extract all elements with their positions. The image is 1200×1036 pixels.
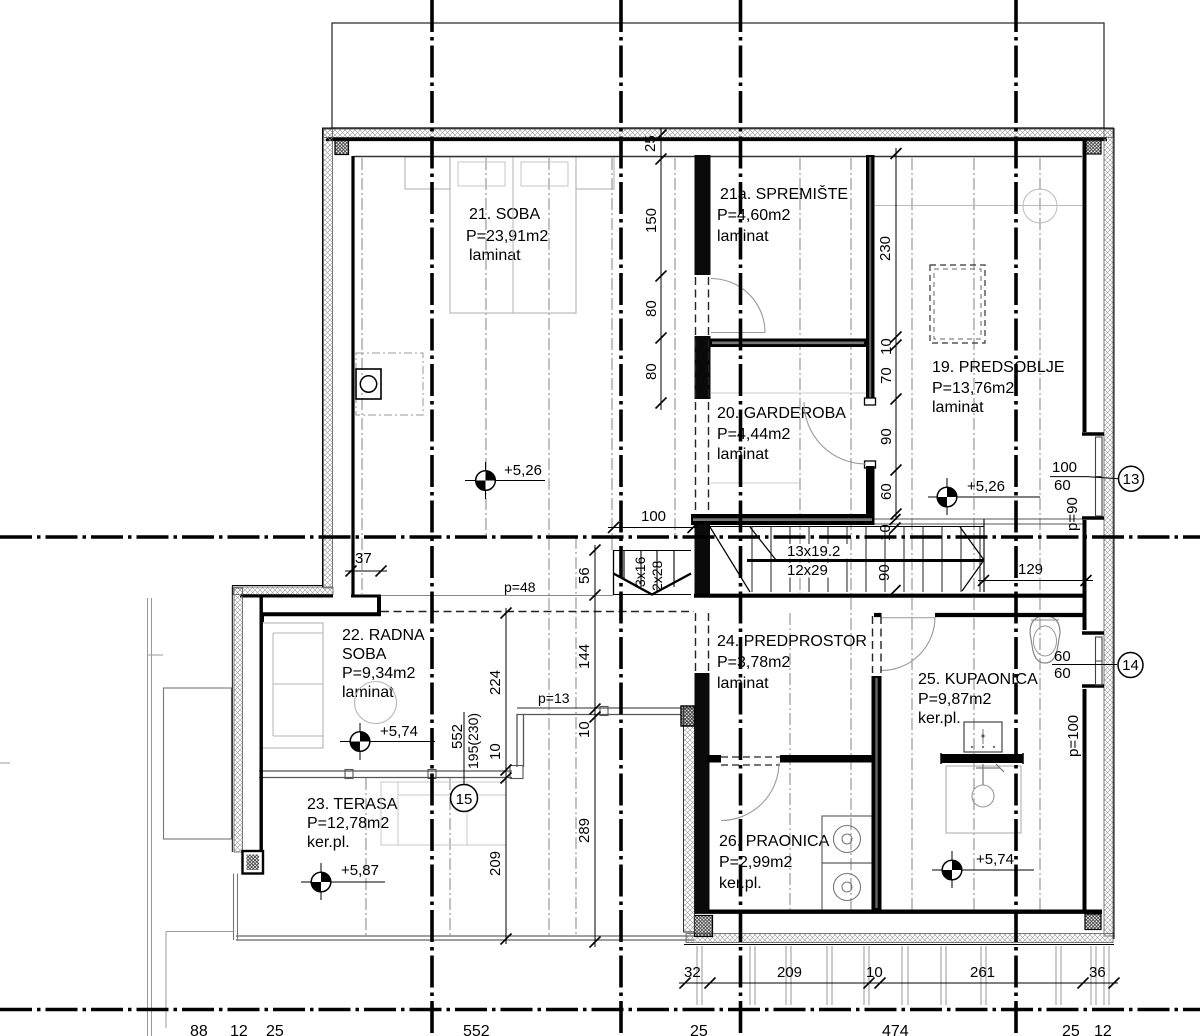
svg-text:60: 60 [1054,648,1071,665]
svg-text:P=4,60m2: P=4,60m2 [717,207,790,224]
svg-text:80: 80 [643,363,660,380]
svg-text:laminat: laminat [342,684,394,701]
svg-text:+5,74: +5,74 [380,723,418,740]
svg-text:19. PREDSOBLJE: 19. PREDSOBLJE [932,359,1065,376]
svg-text:209: 209 [487,851,504,876]
svg-text:10: 10 [576,721,593,738]
svg-text:552: 552 [449,724,466,749]
svg-text:p=48: p=48 [504,579,536,595]
svg-text:60: 60 [878,483,895,500]
svg-text:ker.pl.: ker.pl. [307,834,350,851]
svg-text:80: 80 [643,300,660,317]
svg-text:+5,26: +5,26 [504,462,542,479]
svg-text:15: 15 [456,791,473,808]
svg-text:37: 37 [355,550,372,567]
svg-text:195(230): 195(230) [465,713,481,769]
svg-text:552: 552 [463,1023,490,1036]
svg-text:150: 150 [643,208,660,233]
svg-text:+5,26: +5,26 [967,478,1005,495]
svg-text:2x28: 2x28 [649,560,665,591]
svg-text:12: 12 [230,1023,248,1036]
svg-text:12x29: 12x29 [787,562,828,579]
svg-text:ker.pl.: ker.pl. [918,710,961,727]
svg-text:23. TERASA: 23. TERASA [307,796,398,813]
svg-text:25: 25 [642,135,659,152]
svg-text:129: 129 [1018,561,1043,578]
svg-text:laminat: laminat [717,675,769,692]
svg-text:p=90: p=90 [1064,497,1081,531]
svg-text:60: 60 [1054,477,1071,494]
svg-text:P=3,78m2: P=3,78m2 [717,654,790,671]
svg-text:56: 56 [576,567,593,584]
svg-text:261: 261 [970,964,995,981]
svg-text:12: 12 [1094,1023,1112,1036]
svg-text:224: 224 [487,670,504,695]
svg-text:474: 474 [882,1023,909,1036]
svg-text:P=9,87m2: P=9,87m2 [918,691,991,708]
svg-text:144: 144 [576,644,593,669]
svg-text:22. RADNA: 22. RADNA [342,627,425,644]
svg-text:P=9,34m2: P=9,34m2 [342,665,415,682]
svg-text:P=23,91m2: P=23,91m2 [466,228,548,245]
svg-text:32: 32 [684,964,701,981]
svg-text:13: 13 [1123,471,1140,488]
svg-text:90: 90 [876,564,893,581]
svg-text:100: 100 [641,508,666,525]
svg-text:21. SOBA: 21. SOBA [469,206,540,223]
svg-text:3x16: 3x16 [632,556,648,587]
svg-text:P=4,44m2: P=4,44m2 [717,426,790,443]
svg-text:230: 230 [877,236,894,261]
svg-text:+5,87: +5,87 [341,862,379,879]
svg-text:+5,74: +5,74 [976,851,1014,868]
svg-text:25: 25 [266,1023,284,1036]
svg-text:P=13,76m2: P=13,76m2 [932,380,1014,397]
svg-text:60: 60 [1054,665,1071,682]
svg-text:289: 289 [576,818,593,843]
svg-text:laminat: laminat [932,399,984,416]
svg-text:10: 10 [866,964,883,981]
svg-text:13x19.2: 13x19.2 [787,543,840,560]
svg-text:10: 10 [878,338,895,355]
svg-text:laminat: laminat [717,228,769,245]
svg-text:14: 14 [1122,657,1139,674]
svg-text:P=12,78m2: P=12,78m2 [307,815,389,832]
svg-text:25. KUPAONICA: 25. KUPAONICA [918,671,1038,688]
svg-text:88: 88 [190,1023,208,1036]
svg-text:P=2,99m2: P=2,99m2 [719,854,792,871]
svg-text:26. PRAONICA: 26. PRAONICA [719,833,830,850]
svg-text:25: 25 [1062,1023,1080,1036]
svg-text:36: 36 [1089,964,1106,981]
svg-text:p=13: p=13 [538,690,570,706]
svg-text:25: 25 [690,1023,708,1036]
svg-text:10: 10 [487,743,504,760]
svg-text:100: 100 [1052,459,1077,476]
svg-text:20. GARDEROBA: 20. GARDEROBA [717,405,846,422]
svg-text:90: 90 [878,428,895,445]
svg-text:laminat: laminat [717,446,769,463]
svg-text:209: 209 [777,964,802,981]
svg-text:70: 70 [878,367,895,384]
svg-text:SOBA: SOBA [342,646,387,663]
svg-text:p=100: p=100 [1065,715,1082,757]
